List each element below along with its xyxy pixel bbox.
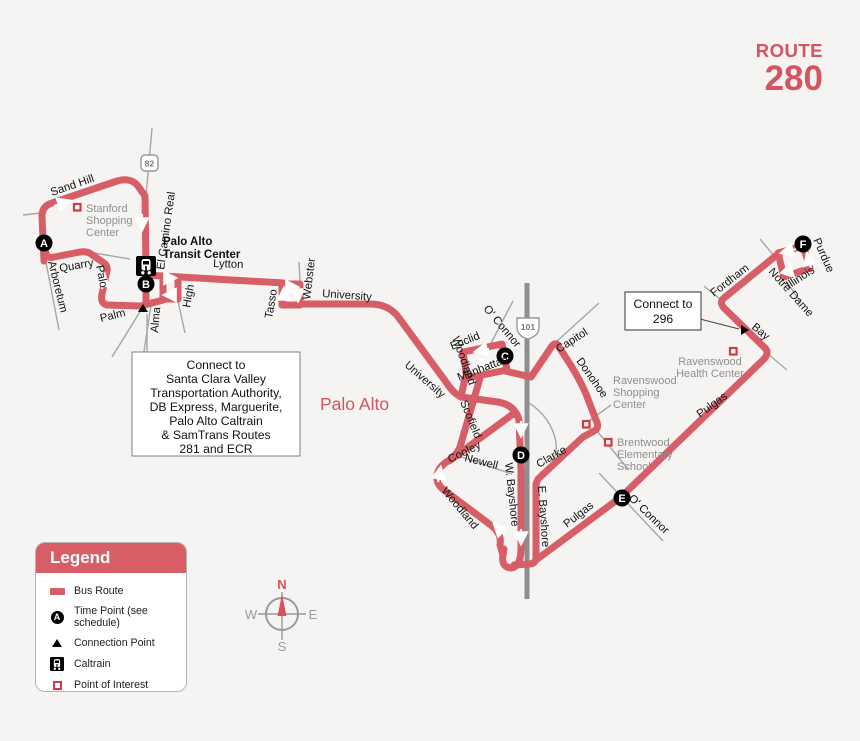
poi-square-brentwood [605, 439, 612, 446]
svg-text:Palo Alto Caltrain: Palo Alto Caltrain [169, 414, 263, 428]
svg-text:Connect to: Connect to [187, 358, 246, 372]
poi-ravenswood-shopping-line2: Shopping [613, 387, 660, 399]
time-point-f: F [795, 236, 812, 253]
poi-stanford-line3: Center [86, 227, 119, 239]
poi-brentwood-line3: School [617, 461, 651, 473]
poi-ravenswood-health-line2: Health Center [676, 368, 744, 380]
legend-item-bus-route: Bus Route [48, 585, 176, 597]
vta-connect-box: Connect to Santa Clara Valley Transporta… [132, 352, 300, 456]
legend-item-time-point: A Time Point (see schedule) [48, 605, 176, 629]
shield-82-label: 82 [145, 159, 155, 169]
svg-text:E: E [618, 493, 625, 505]
legend-label: Point of Interest [74, 679, 148, 691]
svg-text:& SamTrans Routes: & SamTrans Routes [161, 428, 270, 442]
connect-296-box: Connect to 296 [625, 292, 701, 330]
svg-text:296: 296 [653, 312, 674, 326]
legend-title: Legend [36, 543, 186, 573]
legend-label: Time Point (see schedule) [74, 605, 176, 629]
poi-square-stanford [74, 204, 81, 211]
poi-ravenswood-shopping-line1: Ravenswood [613, 375, 677, 387]
poi-ravenswood-health-line1: Ravenswood [678, 356, 742, 368]
compass-e: E [309, 607, 318, 622]
shield-82: 82 [141, 155, 158, 171]
poi-stanford-line1: Stanford [86, 203, 128, 215]
poi-brentwood-line1: Brentwood [617, 437, 670, 449]
time-point-d: D [513, 447, 530, 464]
compass-w: W [245, 607, 258, 622]
transit-center-line1: Palo Alto [163, 236, 212, 248]
city-label-palo-alto: Palo Alto [320, 394, 389, 414]
connection-point-icon [48, 639, 66, 647]
caltrain-legend-icon [48, 657, 66, 671]
street-label-alma: Alma [149, 306, 163, 333]
svg-text:B: B [142, 279, 150, 291]
svg-text:D: D [517, 450, 525, 462]
poi-brentwood-line2: Elementary [617, 449, 673, 461]
time-point-a: A [36, 235, 53, 252]
poi-square-ravenswood-shopping [583, 421, 590, 428]
svg-text:F: F [800, 239, 807, 251]
transit-center-line2: Transit Center [163, 249, 241, 261]
poi-square-ravenswood-health [730, 348, 737, 355]
poi-legend-icon [48, 681, 66, 690]
poi-ravenswood-shopping-line3: Center [613, 399, 646, 411]
legend-label: Bus Route [74, 585, 123, 597]
legend-item-caltrain: Caltrain [48, 657, 176, 671]
legend-label: Connection Point [74, 637, 155, 649]
shield-101-label: 101 [521, 322, 535, 332]
time-point-b: B [138, 276, 155, 293]
shield-101: 101 [517, 318, 539, 339]
svg-text:281 and ECR: 281 and ECR [179, 442, 252, 456]
route-title-number: 280 [765, 59, 823, 98]
svg-text:DB Express, Marguerite,: DB Express, Marguerite, [150, 400, 283, 414]
poi-stanford-line2: Shopping [86, 215, 133, 227]
svg-text:Transportation Authority,: Transportation Authority, [150, 386, 281, 400]
compass-s: S [278, 639, 287, 654]
legend-items: Bus Route A Time Point (see schedule) Co… [36, 573, 186, 701]
compass-n: N [277, 577, 286, 592]
route-map-page: { "title": { "kicker": "ROUTE", "number"… [0, 0, 860, 741]
legend-item-point-of-interest: Point of Interest [48, 679, 176, 691]
legend-item-connection-point: Connection Point [48, 637, 176, 649]
svg-text:Connect to: Connect to [634, 297, 693, 311]
caltrain-icon [136, 256, 156, 276]
legend-panel: Legend Bus Route A Time Point (see sched… [35, 542, 187, 692]
route-title: ROUTE 280 [756, 40, 823, 98]
svg-text:Santa Clara Valley: Santa Clara Valley [166, 372, 267, 386]
street-webster-ext [299, 262, 300, 282]
time-point-icon: A [48, 611, 66, 624]
legend-label: Caltrain [74, 658, 111, 670]
svg-text:A: A [40, 238, 48, 250]
bus-route-swatch-icon [48, 588, 66, 595]
route-title-kicker: ROUTE [756, 40, 823, 61]
